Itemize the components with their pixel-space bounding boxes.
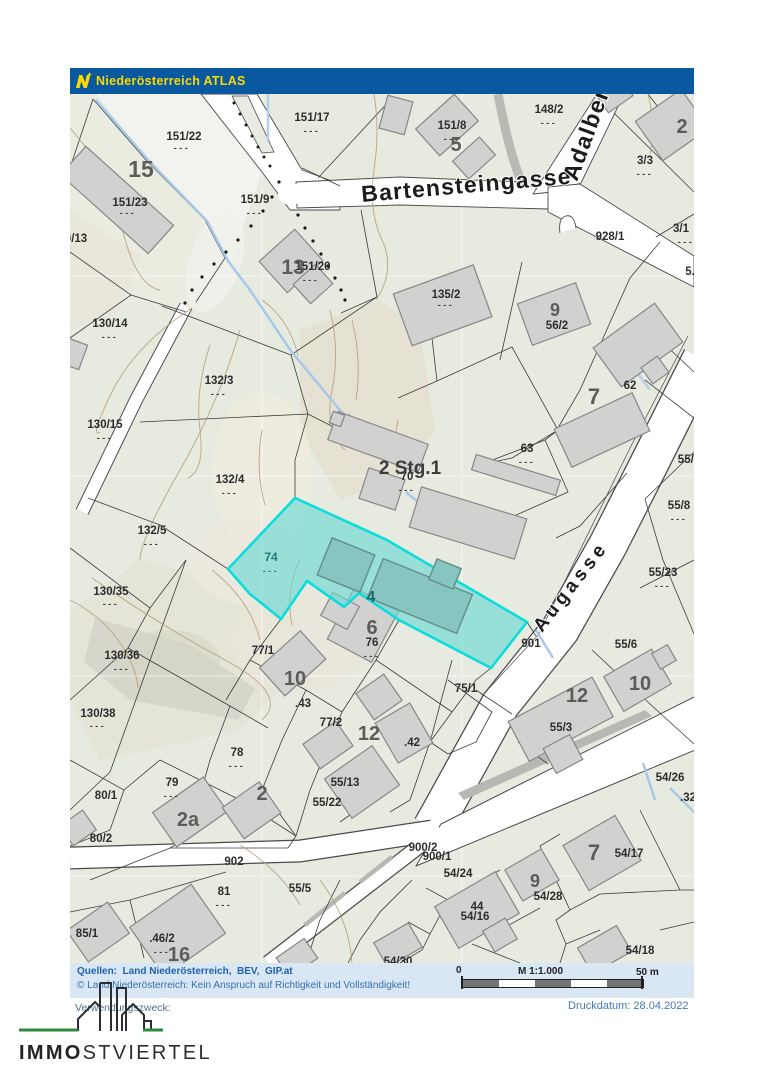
svg-text:55/9: 55/9	[678, 454, 694, 466]
svg-text:---: ---	[519, 457, 536, 467]
svg-text:.32: .32	[680, 792, 694, 804]
svg-text:10: 10	[629, 673, 651, 695]
svg-text:---: ---	[304, 126, 321, 136]
svg-text:---: ---	[120, 208, 137, 218]
svg-text:55/23: 55/23	[649, 567, 678, 579]
svg-text:---: ---	[637, 169, 654, 179]
svg-text:---: ---	[671, 514, 688, 524]
svg-text:54/30: 54/30	[384, 956, 413, 963]
svg-text:54/17: 54/17	[615, 848, 644, 860]
svg-text:---: ---	[678, 237, 694, 247]
svg-text:130/14: 130/14	[92, 318, 128, 330]
svg-text:---: ---	[97, 433, 114, 443]
svg-text:74: 74	[264, 550, 278, 564]
svg-text:2a: 2a	[177, 809, 200, 831]
svg-text:55/6: 55/6	[615, 639, 637, 651]
svg-text:54/26: 54/26	[656, 772, 685, 784]
svg-text:928/1: 928/1	[596, 231, 625, 243]
svg-text:---: ---	[216, 900, 233, 910]
svg-text:54/16: 54/16	[461, 911, 490, 923]
svg-text:80/2: 80/2	[90, 833, 112, 845]
svg-text:54/24: 54/24	[444, 868, 473, 880]
svg-text:55/8: 55/8	[668, 500, 691, 512]
svg-text:79: 79	[166, 777, 179, 789]
svg-text:---: ---	[399, 485, 416, 495]
svg-text:81: 81	[218, 886, 231, 898]
svg-text:6: 6	[366, 617, 377, 639]
svg-text:132/5: 132/5	[138, 525, 167, 537]
svg-text:15: 15	[128, 156, 154, 182]
svg-text:---: ---	[263, 566, 280, 576]
svg-text:54/28: 54/28	[534, 891, 563, 903]
svg-text:---: ---	[438, 300, 455, 310]
svg-text:130/15: 130/15	[87, 419, 123, 431]
svg-text:56/2: 56/2	[546, 320, 568, 332]
svg-text:85/1: 85/1	[76, 928, 99, 940]
svg-text:55/22: 55/22	[313, 797, 342, 809]
svg-text:---: ---	[114, 664, 131, 674]
svg-text:77/1: 77/1	[252, 645, 275, 657]
svg-text:130/36: 130/36	[104, 650, 139, 662]
svg-text:130/38: 130/38	[80, 708, 116, 720]
svg-text:---: ---	[90, 721, 107, 731]
svg-text:77/2: 77/2	[320, 717, 342, 729]
svg-text:151/22: 151/22	[166, 131, 201, 143]
svg-text:---: ---	[222, 488, 239, 498]
svg-text:---: ---	[364, 651, 381, 661]
svg-text:900/1: 900/1	[423, 851, 452, 863]
svg-text:2 Stg.1: 2 Stg.1	[379, 458, 442, 479]
svg-text:---: ---	[303, 275, 320, 285]
svg-text:75/1: 75/1	[455, 683, 478, 695]
svg-text:80/1: 80/1	[95, 790, 118, 802]
svg-text:12: 12	[566, 685, 588, 707]
svg-text:---: ---	[541, 118, 558, 128]
svg-text:---: ---	[144, 539, 161, 549]
svg-text:---: ---	[102, 332, 119, 342]
svg-text:62: 62	[624, 380, 637, 392]
svg-text:9: 9	[550, 300, 560, 320]
svg-text:12: 12	[358, 723, 380, 745]
svg-text:---: ---	[211, 389, 228, 399]
svg-text:4: 4	[367, 589, 376, 606]
svg-text:902: 902	[224, 856, 243, 868]
svg-text:151/8: 151/8	[438, 120, 467, 132]
svg-text:2: 2	[256, 783, 267, 805]
svg-text:10: 10	[284, 668, 306, 690]
svg-text:5.: 5.	[685, 266, 694, 278]
svg-text:9: 9	[530, 871, 540, 891]
svg-text:3/3: 3/3	[637, 155, 653, 167]
svg-text:7: 7	[588, 384, 600, 409]
svg-text:148/2: 148/2	[535, 104, 564, 116]
svg-text:---: ---	[247, 208, 264, 218]
svg-text:.42: .42	[404, 737, 420, 749]
svg-text:54/18: 54/18	[626, 945, 655, 957]
svg-text:3/1: 3/1	[673, 223, 690, 235]
svg-text:132/3: 132/3	[205, 375, 234, 387]
svg-text:---: ---	[164, 791, 181, 801]
svg-text:151/9: 151/9	[241, 194, 270, 206]
svg-text:5: 5	[450, 134, 461, 156]
svg-text:---: ---	[229, 761, 246, 771]
svg-text:0/13: 0/13	[70, 233, 87, 245]
svg-text:13: 13	[281, 256, 304, 279]
svg-text:78: 78	[231, 747, 244, 759]
svg-text:---: ---	[655, 581, 672, 591]
svg-text:132/4: 132/4	[216, 474, 245, 486]
svg-text:63: 63	[521, 443, 534, 455]
svg-text:151/17: 151/17	[294, 112, 329, 124]
svg-text:130/35: 130/35	[93, 586, 129, 598]
svg-text:2: 2	[676, 116, 687, 138]
svg-text:---: ---	[174, 143, 191, 153]
svg-text:55/3: 55/3	[550, 722, 572, 734]
svg-text:55/5: 55/5	[289, 883, 312, 895]
svg-text:---: ---	[103, 599, 120, 609]
svg-text:16: 16	[168, 944, 190, 963]
svg-text:.43: .43	[295, 698, 311, 710]
svg-text:7: 7	[588, 840, 600, 865]
svg-text:901: 901	[521, 638, 541, 650]
svg-text:55/13: 55/13	[331, 777, 360, 789]
